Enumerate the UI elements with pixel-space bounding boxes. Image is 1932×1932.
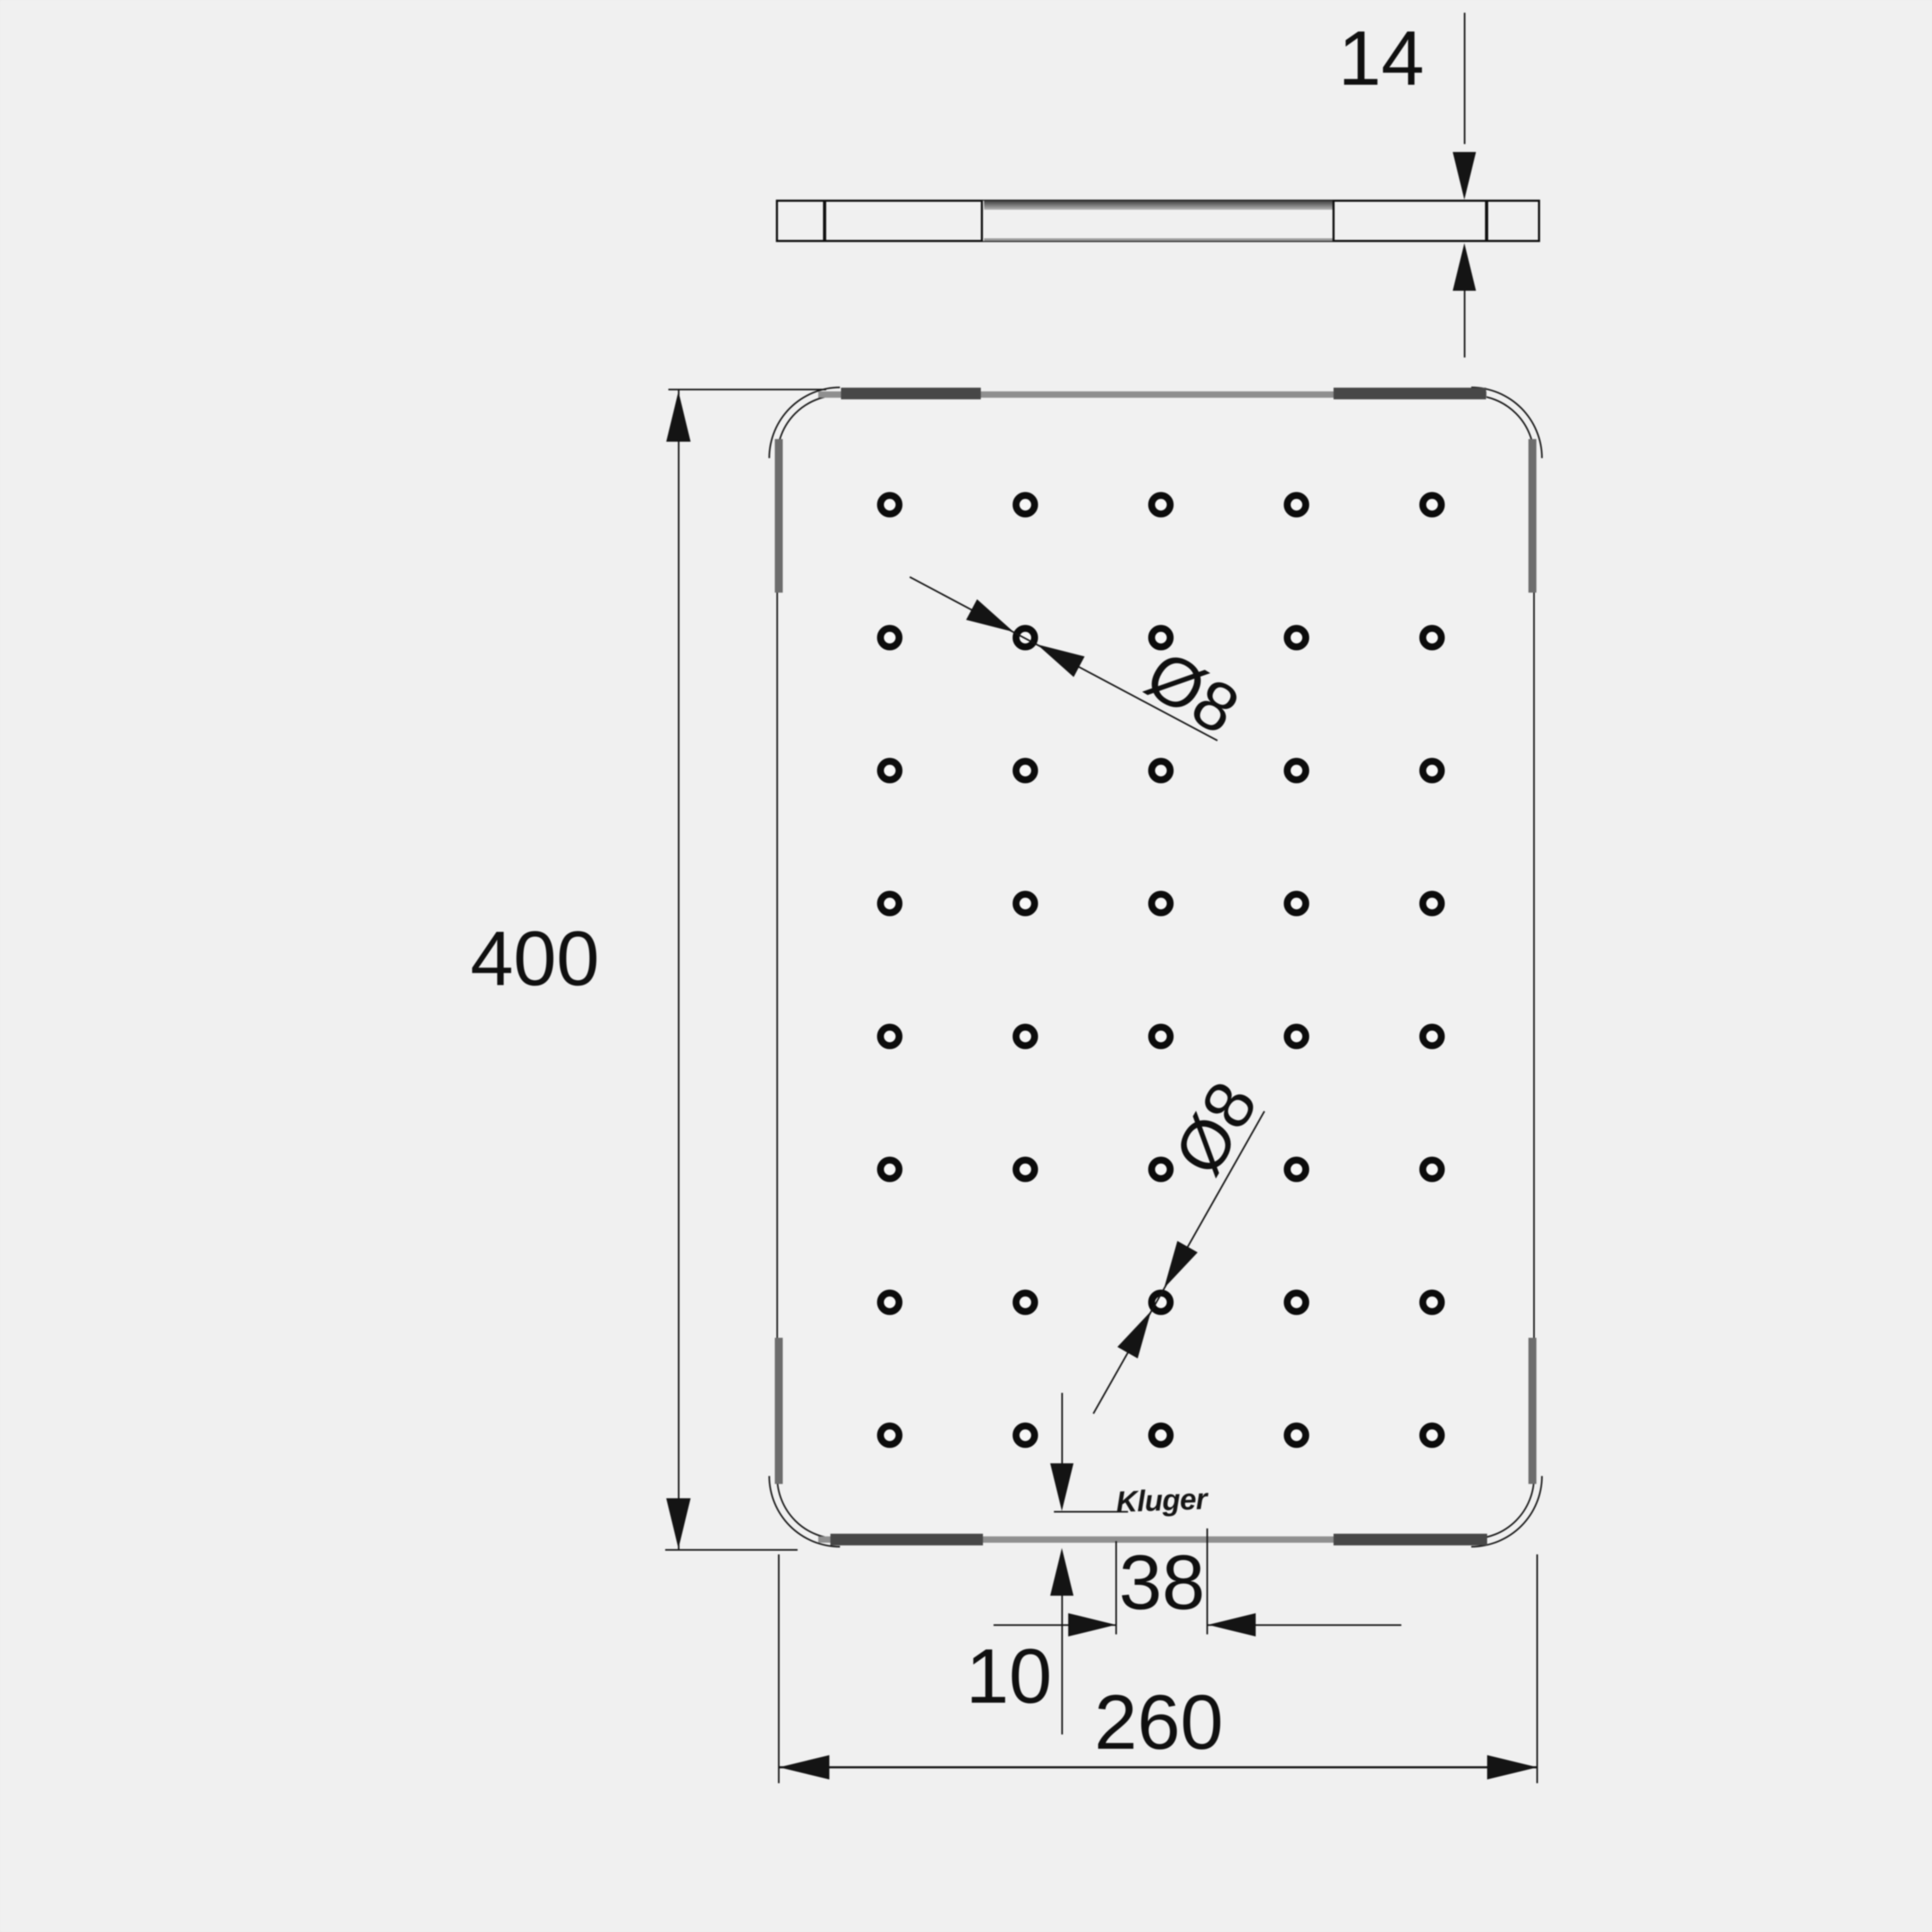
hole [1013, 1290, 1038, 1315]
hole [1284, 1290, 1309, 1315]
hole [1013, 1157, 1038, 1182]
dim-offset-arrow-down-icon [1050, 1463, 1074, 1511]
hole [1284, 1423, 1309, 1448]
dim-offset-arrow-up-icon [1050, 1548, 1074, 1596]
dim-width-ext-left [778, 1554, 780, 1783]
profile-right-hook-segment [1332, 200, 1487, 242]
profile-rail-strip-bottom [984, 238, 1332, 241]
hole [1013, 1423, 1038, 1448]
hole [877, 1157, 902, 1182]
profile-left-end-cap [776, 200, 825, 242]
dim-38-label: 38 [1109, 1540, 1215, 1625]
hole [1148, 891, 1174, 916]
hole [1013, 1024, 1038, 1049]
side-hook-left-bottom [775, 1338, 783, 1484]
brand-logo: Kluger [1097, 1480, 1226, 1521]
dim-height-ext-top [668, 389, 826, 390]
hole [1284, 891, 1309, 916]
dim-thickness-line-lower [1464, 291, 1465, 357]
hole [1013, 492, 1038, 517]
hole [1148, 1423, 1174, 1448]
hole [1419, 891, 1445, 916]
hole [1284, 625, 1309, 650]
dim-thickness-arrow-up-icon [1453, 243, 1476, 291]
dim-width-arrow-left-icon [779, 1755, 829, 1779]
dim-height-arrow-down-icon [666, 1498, 691, 1549]
hole [877, 758, 902, 783]
dim-thickness-line-upper [1464, 13, 1465, 144]
side-hook-left-top [775, 439, 783, 593]
dim-height-ext-bottom [665, 1549, 798, 1551]
dim-width-line [779, 1766, 1537, 1768]
dim-thickness-label: 14 [1334, 16, 1429, 101]
side-hook-right-bottom [1528, 1338, 1536, 1484]
dim-width-label: 260 [1079, 1680, 1238, 1765]
hole [877, 1290, 902, 1315]
dim-offset-tick [1054, 1511, 1128, 1513]
hole [877, 1024, 902, 1049]
hole [1419, 1024, 1445, 1049]
dim-offset-line-upper [1061, 1393, 1063, 1464]
hole [877, 891, 902, 916]
dim-height-line [678, 390, 679, 1550]
hole [877, 625, 902, 650]
profile-left-hook-segment [824, 200, 983, 242]
hole [1419, 1157, 1445, 1182]
hole [1284, 492, 1309, 517]
bottom-rail-grip-left [830, 1534, 983, 1545]
dim-thickness-arrow-down-icon [1453, 152, 1476, 200]
hole [1284, 1024, 1309, 1049]
hole [1419, 1423, 1445, 1448]
dim-offset-label: 10 [956, 1634, 1062, 1719]
profile-right-end-cap [1486, 200, 1540, 242]
hole [1013, 758, 1038, 783]
dim-height-arrow-up-icon [666, 391, 691, 442]
hole [1013, 891, 1038, 916]
hole [1419, 492, 1445, 517]
top-rail-grip-right [1334, 388, 1486, 399]
hole [1148, 1024, 1174, 1049]
dim-width-arrow-right-icon [1487, 1755, 1537, 1779]
side-hook-right-top [1528, 439, 1536, 593]
bottom-rail-grip-right [1334, 1534, 1487, 1545]
hole [1148, 758, 1174, 783]
dim-width-ext-right [1536, 1554, 1538, 1783]
hole [1284, 758, 1309, 783]
hole [877, 492, 902, 517]
hole [1419, 758, 1445, 783]
hole [1419, 625, 1445, 650]
technical-drawing-canvas: 14 400 Ø8 Ø8 Kluger [0, 0, 1932, 1932]
top-rail-grip-left [841, 388, 981, 399]
hole [1284, 1157, 1309, 1182]
hole [1148, 492, 1174, 517]
hole [1419, 1290, 1445, 1315]
hole [877, 1423, 902, 1448]
dim-38-arrow-left-icon [1208, 1613, 1256, 1636]
profile-rail-strip [984, 201, 1332, 210]
dim-height-label: 400 [455, 916, 614, 1001]
plate-front-view [776, 395, 1535, 1540]
